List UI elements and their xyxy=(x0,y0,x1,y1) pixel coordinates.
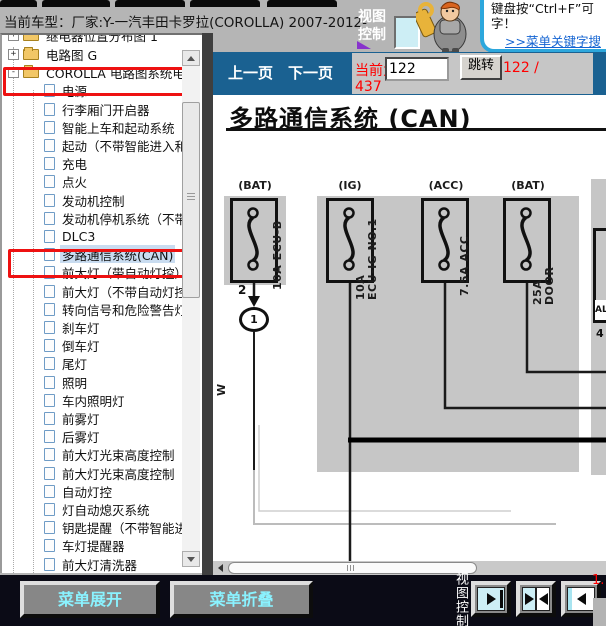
tree-item[interactable]: 前大灯光束高度控制（手 xyxy=(2,464,202,482)
document-icon xyxy=(44,266,55,279)
page-total-label: 437 xyxy=(355,79,382,95)
tree-item[interactable]: 灯自动熄灭系统 xyxy=(2,500,202,518)
tree-item-label: 电源 xyxy=(60,81,89,99)
document-icon xyxy=(44,230,55,243)
view-control-label: 视图控制 xyxy=(358,8,390,44)
tree-item[interactable]: 发动机控制 xyxy=(2,191,202,209)
menu-collapse-button[interactable]: 菜单折叠 xyxy=(170,581,313,618)
tree-item[interactable]: 照明 xyxy=(2,373,202,391)
tree-item[interactable]: 起动（不带智能进入和起 xyxy=(2,136,202,154)
current-vehicle-label: 当前车型：厂家:Y-一汽丰田卡罗拉(COROLLA) 2007-2012- xyxy=(4,11,367,31)
tree-item-label: 车灯提醒器 xyxy=(60,536,127,554)
tab-stub xyxy=(190,0,260,7)
fuse-rating-label: 10A ECU-B xyxy=(272,220,284,290)
tree-item-label: 发动机控制 xyxy=(60,191,127,209)
pane-left-arrow-icon xyxy=(536,587,550,611)
tree-item-label: 前大灯（不带自动灯控） xyxy=(60,282,202,300)
jump-button[interactable]: 跳转 xyxy=(460,55,502,80)
fuse-head-label: (BAT) xyxy=(493,179,563,192)
connector-pin-label: 2 xyxy=(238,283,246,297)
page-of-label: 122 / xyxy=(503,60,539,76)
view-split-button[interactable] xyxy=(516,581,556,617)
tree-item[interactable]: 前大灯清洗器 xyxy=(2,555,202,573)
zoom-indicator: 1. xyxy=(592,573,604,588)
document-icon xyxy=(44,558,55,571)
next-page-button[interactable]: 下一页 xyxy=(288,62,333,83)
scroll-down-button[interactable] xyxy=(182,551,200,567)
helper-tip-line2: 字！ xyxy=(491,16,606,31)
view-expand-right-button[interactable] xyxy=(471,581,511,617)
tree-item[interactable]: 前大灯（不带自动灯控） xyxy=(2,282,202,300)
document-icon xyxy=(44,467,55,480)
menu-expand-button[interactable]: 菜单展开 xyxy=(20,581,160,618)
fuse-rating-label: 10A ECU-IG NO.1 xyxy=(355,218,379,300)
corner-box xyxy=(593,598,606,626)
menu-tree-panel: + 继电器位置分布图 1 + 电路图 G - COROLLA 电路图系统电路 电… xyxy=(0,33,202,573)
document-icon xyxy=(44,303,55,316)
fuse-head-label: (IG) xyxy=(315,179,385,192)
tab-stub xyxy=(115,0,185,7)
tree-item[interactable]: 车灯提醒器 xyxy=(2,536,202,554)
tree-item[interactable]: 前雾灯 xyxy=(2,409,202,427)
wire-color-label: W xyxy=(216,383,228,396)
tree-item-label: 发动机停机系统（不带智 xyxy=(60,209,202,227)
tree-item[interactable]: 智能上车和起动系统 xyxy=(2,118,202,136)
tree-scrollbar[interactable] xyxy=(182,50,200,567)
partial-box-pin-label: 4 xyxy=(596,327,604,340)
document-icon xyxy=(44,539,55,552)
document-icon xyxy=(44,139,55,152)
tree-item[interactable]: 多路通信系统(CAN) xyxy=(2,245,202,263)
document-icon xyxy=(44,84,55,97)
document-icon xyxy=(44,503,55,516)
fuse-head-label: (ACC) xyxy=(411,179,481,192)
viewer-hscrollbar-thumb[interactable] xyxy=(228,562,477,574)
tree-item-label: 前大灯光束高度控制（自 xyxy=(60,445,202,463)
partial-box-label: AL xyxy=(595,300,606,320)
folder-icon xyxy=(23,33,39,41)
app-window: 当前车型：厂家:Y-一汽丰田卡罗拉(COROLLA) 2007-2012- 视图… xyxy=(0,0,606,626)
pane-right-arrow-icon xyxy=(477,587,505,611)
document-icon xyxy=(44,285,55,298)
tab-stub xyxy=(0,0,37,7)
document-icon xyxy=(44,103,55,116)
tree-item-label: 尾灯 xyxy=(60,354,89,372)
prev-page-button[interactable]: 上一页 xyxy=(228,62,273,83)
document-icon xyxy=(44,485,55,498)
view-control-vertical-label: 视图控制 xyxy=(452,572,468,626)
tree-item-label: 刹车灯 xyxy=(60,318,102,336)
connector-circle: 1 xyxy=(239,307,269,332)
mascot-image xyxy=(416,0,480,55)
folder-icon xyxy=(23,67,39,78)
expand-toggle-icon[interactable]: + xyxy=(8,33,19,41)
tree-item[interactable]: 转向信号和危险警告灯 xyxy=(2,300,202,318)
tree-item-label: 倒车灯 xyxy=(60,336,102,354)
document-icon xyxy=(44,448,55,461)
tree-item[interactable]: 点火 xyxy=(2,172,202,190)
tree-scrollbar-thumb[interactable] xyxy=(182,102,200,298)
tree-item[interactable]: 倒车灯 xyxy=(2,336,202,354)
arrow-left-icon xyxy=(218,564,223,572)
cursor-triangle-icon xyxy=(357,41,371,49)
panel-splitter[interactable] xyxy=(202,33,213,575)
tree-item-label: 前大灯清洗器 xyxy=(60,555,139,573)
tree-item[interactable]: 发动机停机系统（不带智 xyxy=(2,209,202,227)
tree-item-label: 起动（不带智能进入和起 xyxy=(60,136,202,154)
fuse-rating-label: 7.5A ACC xyxy=(459,236,471,297)
document-icon xyxy=(44,157,55,170)
tree-item-label: 行李厢门开启器 xyxy=(60,100,152,118)
tree-item[interactable]: 前大灯（带自动灯控） xyxy=(2,263,202,281)
tree-item-label: 继电器位置分布图 1 xyxy=(44,33,160,44)
pane-right-arrow-icon xyxy=(522,587,536,611)
document-icon xyxy=(44,412,55,425)
wiring-lines xyxy=(213,95,606,561)
tree-item[interactable]: 充电 xyxy=(2,154,202,172)
tree-item[interactable]: DLC3 xyxy=(2,227,202,245)
tree-item[interactable]: 车内照明灯 xyxy=(2,391,202,409)
document-icon xyxy=(44,430,55,443)
scroll-up-button[interactable] xyxy=(182,50,200,66)
tree-item[interactable]: - COROLLA 电路图系统电路 xyxy=(2,63,188,81)
folder-icon xyxy=(23,49,39,60)
tree-item-label: 多路通信系统(CAN) xyxy=(60,245,175,263)
page-navigation-bar: 上一页 下一页 当前为 跳转 122 / 437 xyxy=(213,52,606,95)
tree-item[interactable]: 钥匙提醒（不带智能进入 xyxy=(2,518,202,536)
arrow-up-icon xyxy=(187,56,195,61)
document-icon xyxy=(44,248,55,261)
tree-item[interactable]: 前大灯光束高度控制（自 xyxy=(2,445,202,463)
tree-item-label: 车内照明灯 xyxy=(60,391,127,409)
tree-item-label: 转向信号和危险警告灯 xyxy=(60,300,189,318)
document-icon xyxy=(44,212,55,225)
tree-item-clipped[interactable]: + 继电器位置分布图 1 xyxy=(2,33,188,44)
page-number-input[interactable] xyxy=(385,57,449,81)
tree-item-label: 照明 xyxy=(60,373,89,391)
tree-item[interactable]: + 电路图 G xyxy=(2,45,188,63)
tree-item-label: COROLLA 电路图系统电路 xyxy=(44,63,188,81)
tree-item[interactable]: 自动灯控 xyxy=(2,482,202,500)
tab-stub xyxy=(267,0,337,7)
scroll-left-button[interactable] xyxy=(213,561,227,575)
arrow-down-icon xyxy=(248,296,260,307)
document-icon xyxy=(44,521,55,534)
tree-item-label: 自动灯控 xyxy=(60,482,114,500)
tree-item-label: 充电 xyxy=(60,154,89,172)
pane-left-arrow-icon xyxy=(567,587,595,611)
helper-bubble: 键盘按“Ctrl+F”可 字！ >>菜单关键字搜 xyxy=(480,0,606,53)
tree-item-label: 前雾灯 xyxy=(60,409,102,427)
expand-toggle-icon[interactable]: + xyxy=(8,49,19,60)
tree-item-label: 点火 xyxy=(60,172,89,190)
arrow-down-icon xyxy=(187,557,195,562)
tree-item-label: 前大灯（带自动灯控） xyxy=(60,263,189,281)
tree-item[interactable]: 后雾灯 xyxy=(2,427,202,445)
document-icon xyxy=(44,394,55,407)
tree-item[interactable]: 尾灯 xyxy=(2,354,202,372)
diagram-viewer: 多路通信系统 (CAN) (BAT) 10A ECU-B (IG) 10A EC xyxy=(213,95,606,561)
tree-item-label: 钥匙提醒（不带智能进入 xyxy=(60,518,202,536)
tree-item[interactable]: 电源 xyxy=(2,81,202,99)
document-icon xyxy=(44,339,55,352)
bottom-toolbar: 菜单展开 菜单折叠 视图控制 1. xyxy=(0,575,606,626)
helper-tip-line1: 键盘按“Ctrl+F”可 xyxy=(491,1,606,16)
tree-item-label: DLC3 xyxy=(60,229,97,244)
viewer-hscrollbar[interactable] xyxy=(213,561,606,575)
tree-item-label: 灯自动熄灭系统 xyxy=(60,500,152,518)
tree-item-label: 智能上车和起动系统 xyxy=(60,118,177,136)
fuse-head-label: (BAT) xyxy=(220,179,290,192)
fuse-rating-label: 25A DOOR xyxy=(532,255,556,305)
document-icon xyxy=(44,175,55,188)
page-jump-panel: 当前为 跳转 122 / 437 xyxy=(352,53,593,94)
document-icon xyxy=(44,357,55,370)
document-icon xyxy=(44,121,55,134)
menu-keyword-search-link[interactable]: >>菜单关键字搜 xyxy=(505,31,606,50)
tree-item-label: 前大灯光束高度控制（手 xyxy=(60,464,202,482)
document-icon xyxy=(44,321,55,334)
document-icon xyxy=(44,194,55,207)
expand-toggle-icon[interactable]: - xyxy=(8,67,19,78)
tree-item-label: 后雾灯 xyxy=(60,427,102,445)
tree-item[interactable]: 行李厢门开启器 xyxy=(2,100,202,118)
tree-item-label: 电路图 G xyxy=(44,45,99,63)
tab-stub xyxy=(42,0,110,7)
document-icon xyxy=(44,376,55,389)
tree-item[interactable]: 刹车灯 xyxy=(2,318,202,336)
